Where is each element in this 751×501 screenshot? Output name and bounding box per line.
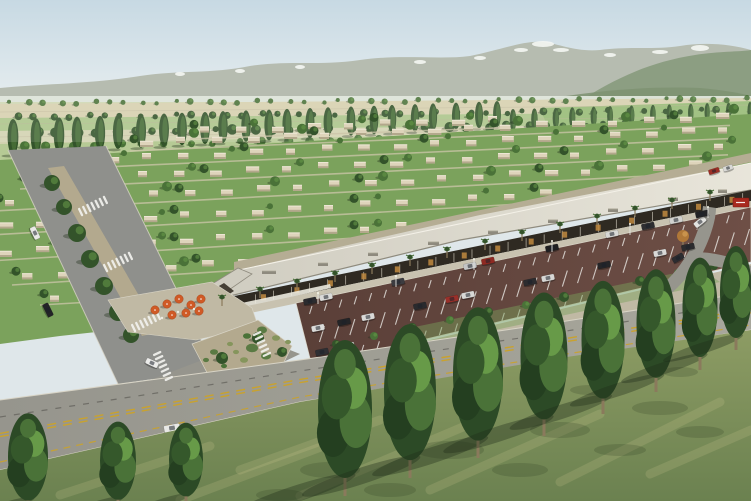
house-face: [320, 137, 329, 139]
tree-highlight: [625, 113, 630, 118]
house-face: [149, 195, 158, 197]
house-parapet: [248, 137, 260, 138]
bush-tree: [483, 188, 489, 194]
shrub: [246, 344, 258, 352]
tree-shadow: [195, 144, 208, 147]
house-parapet: [360, 227, 369, 228]
house-face: [401, 184, 414, 186]
house-face: [142, 157, 151, 159]
house-parapet: [390, 162, 403, 163]
tree-highlight: [299, 159, 303, 163]
palm-crown: [295, 279, 300, 284]
palm-crown: [370, 263, 375, 268]
snow-patch: [414, 60, 426, 64]
house-parapet: [176, 137, 185, 138]
house-face: [236, 131, 246, 133]
house-parapet: [5, 200, 14, 201]
tree-shadow: [107, 149, 121, 152]
house-face: [360, 205, 370, 207]
house-face: [185, 194, 195, 196]
umbrella-tip: [166, 303, 168, 305]
house-face: [248, 141, 260, 143]
house-parapet: [257, 185, 270, 186]
house-parapet: [288, 206, 301, 207]
house-parapet: [380, 119, 390, 120]
house-parapet: [452, 120, 465, 121]
house-parapet: [180, 239, 193, 240]
tree-highlight: [353, 221, 357, 225]
tree-highlight: [525, 302, 529, 306]
house-face: [610, 136, 620, 138]
house-face: [50, 300, 59, 302]
palm-crown: [595, 214, 600, 219]
house-parapet: [236, 127, 246, 128]
house-face: [466, 144, 476, 146]
umbrella-tip: [178, 298, 180, 300]
foliage-blob: [334, 349, 356, 379]
house-face: [200, 131, 209, 133]
house-parapet: [246, 166, 259, 167]
rooftop-unit-top: [548, 219, 558, 220]
storefront-window: [629, 218, 634, 224]
foliage-blob: [111, 427, 125, 444]
house-face: [322, 149, 332, 151]
house-parapet: [653, 165, 665, 166]
house-face: [538, 140, 551, 142]
bush-tree: [445, 133, 451, 139]
house-parapet: [293, 185, 302, 186]
foliage-blob: [693, 264, 707, 286]
umbrella-tip: [185, 312, 187, 314]
house-face: [464, 129, 473, 131]
house-parapet: [540, 189, 552, 190]
house-parapet: [212, 137, 222, 138]
house-face: [653, 169, 665, 171]
palm-crown: [220, 295, 225, 300]
tree-highlight: [281, 348, 286, 353]
house-face: [394, 149, 407, 151]
monument-sign: [733, 198, 749, 207]
house-face: [257, 189, 270, 191]
snow-patch: [175, 72, 185, 76]
house-face: [502, 140, 514, 142]
house-parapet: [166, 265, 176, 266]
house-parapet: [468, 195, 477, 196]
palm-crown: [558, 222, 563, 227]
house-parapet: [200, 126, 209, 127]
house-face: [358, 149, 370, 151]
tree-highlight: [603, 126, 607, 130]
palm-crown: [633, 206, 638, 211]
tree-highlight: [423, 135, 427, 139]
house-face: [210, 175, 222, 177]
storefront-window: [562, 232, 567, 238]
house-face: [570, 157, 579, 159]
pole-lamp: [629, 223, 631, 225]
house-face: [324, 209, 333, 211]
house-parapet: [608, 121, 617, 122]
house-parapet: [570, 153, 579, 154]
house-parapet: [174, 171, 184, 172]
house-parapet: [488, 116, 497, 117]
house-face: [545, 174, 558, 176]
house-parapet: [718, 127, 727, 128]
house-face: [468, 199, 477, 201]
house-face: [426, 162, 435, 164]
shrub: [227, 342, 233, 346]
tree-highlight: [178, 185, 182, 189]
bush-tree: [121, 150, 127, 156]
patio-table: [177, 311, 179, 313]
shade-patch: [632, 401, 688, 415]
house-parapet: [214, 153, 226, 154]
tree-highlight: [706, 153, 711, 158]
house-parapet: [642, 148, 654, 149]
house-parapet: [144, 216, 157, 217]
tree-highlight: [598, 162, 603, 167]
tree-highlight: [76, 226, 84, 234]
house-parapet: [50, 296, 59, 297]
house-parapet: [428, 129, 441, 130]
foliage-blob: [685, 283, 705, 315]
tree-highlight: [373, 114, 377, 118]
house-parapet: [216, 234, 225, 235]
house-face: [642, 152, 654, 154]
foliage-blob: [171, 441, 190, 465]
shade-patch: [492, 463, 548, 477]
rooftop-unit-top: [318, 262, 328, 263]
foliage-blob: [179, 428, 193, 444]
umbrella-tip: [171, 314, 173, 316]
foliage-blob: [730, 252, 743, 272]
house-face: [272, 131, 284, 133]
house-parapet: [680, 117, 692, 118]
bush-tree: [553, 129, 559, 135]
house-parapet: [716, 113, 729, 114]
shade-patch: [676, 426, 724, 438]
pole-lamp: [317, 292, 319, 294]
shrub: [203, 358, 209, 362]
tree-highlight: [274, 177, 279, 182]
house-parapet: [430, 140, 439, 141]
tree-highlight: [469, 113, 473, 117]
house-face: [214, 157, 226, 159]
tree-highlight: [313, 127, 317, 131]
tree-highlight: [383, 156, 387, 160]
snow-patch: [235, 69, 245, 73]
house-face: [416, 124, 428, 126]
house-parapet: [416, 120, 428, 121]
house-parapet: [138, 171, 147, 172]
house-parapet: [545, 170, 558, 171]
house-parapet: [432, 199, 445, 200]
house-parapet: [394, 144, 407, 145]
house-parapet: [365, 180, 377, 181]
tree-highlight: [533, 184, 537, 188]
house-parapet: [286, 149, 295, 150]
shrub: [285, 340, 291, 344]
house-parapet: [221, 190, 233, 191]
rooftop-unit-top: [262, 270, 276, 271]
house-parapet: [329, 180, 339, 181]
house-parapet: [284, 133, 297, 134]
pole-lamp: [395, 275, 397, 277]
palm-crown: [483, 239, 488, 244]
house-face: [574, 140, 583, 142]
house-parapet: [322, 145, 332, 146]
tree-highlight: [487, 308, 492, 313]
house-parapet: [466, 140, 476, 141]
storefront-window: [462, 252, 467, 258]
storefront-window: [696, 204, 701, 210]
house-parapet: [320, 133, 329, 134]
tree-highlight: [515, 146, 519, 150]
tree-highlight: [43, 290, 47, 294]
house-parapet: [210, 171, 222, 172]
tree-highlight: [407, 155, 411, 159]
tree-highlight: [51, 177, 58, 184]
house-parapet: [534, 153, 547, 154]
tree-highlight: [358, 175, 362, 179]
house-face: [282, 170, 291, 172]
house-face: [452, 124, 465, 126]
house-face: [288, 210, 301, 212]
house-face: [0, 227, 13, 229]
storefront-window: [428, 259, 433, 265]
tree-highlight: [195, 255, 199, 259]
house-parapet: [36, 246, 49, 247]
tree-highlight: [193, 129, 198, 134]
house-face: [606, 153, 616, 155]
house-face: [498, 157, 510, 159]
house-face: [437, 179, 446, 181]
house-face: [678, 148, 691, 150]
palm-crown: [670, 198, 675, 203]
house-parapet: [252, 210, 264, 211]
shrub: [240, 357, 248, 363]
snow-patch: [532, 41, 554, 47]
tree-highlight: [45, 143, 49, 147]
house-face: [462, 161, 472, 163]
pole-lamp: [551, 240, 553, 242]
rooftop-unit-top: [718, 189, 727, 190]
tree-highlight: [15, 268, 19, 272]
shrub: [233, 350, 239, 354]
umbrella-tip: [198, 310, 200, 312]
house-face: [581, 174, 590, 176]
house-parapet: [22, 273, 32, 274]
umbrella-tip: [154, 309, 156, 311]
tree-highlight: [490, 167, 495, 172]
tree-shadow: [130, 147, 143, 150]
tree-highlight: [161, 233, 165, 237]
storefront-window: [495, 246, 500, 252]
storefront-window: [395, 266, 400, 272]
foliage-blob: [11, 435, 33, 464]
foliage-blob: [648, 276, 664, 300]
tree-highlight: [173, 233, 177, 237]
house-face: [534, 157, 547, 159]
house-face: [22, 277, 32, 279]
house-parapet: [0, 222, 13, 223]
snow-patch: [604, 53, 616, 57]
house-parapet: [288, 232, 300, 233]
house-face: [216, 215, 226, 217]
house-face: [252, 237, 262, 239]
house-face: [144, 220, 157, 222]
rooftop-unit-top: [428, 241, 439, 242]
house-face: [180, 243, 193, 245]
tree-highlight: [673, 111, 677, 115]
foliage-blob: [535, 301, 554, 329]
rooftop-unit-top: [368, 252, 378, 253]
tree-highlight: [449, 317, 453, 321]
house-face: [212, 141, 222, 143]
pole-lamp: [473, 258, 475, 260]
house-face: [432, 203, 445, 205]
storefront-window: [596, 225, 601, 231]
house-face: [390, 166, 403, 168]
palm-crown: [258, 287, 263, 292]
palm-crown: [708, 190, 713, 195]
house-parapet: [250, 149, 263, 150]
house-face: [682, 132, 695, 134]
house-face: [288, 237, 300, 239]
palm-crown: [408, 255, 413, 260]
house-face: [138, 175, 147, 177]
tree-highlight: [221, 354, 226, 359]
tree-shadow: [172, 145, 185, 148]
house-face: [396, 204, 408, 206]
house-face: [504, 198, 514, 200]
tree-highlight: [243, 143, 247, 147]
house-parapet: [324, 228, 337, 229]
bush-tree: [229, 146, 235, 152]
house-face: [354, 166, 366, 168]
foliage-blob: [639, 296, 661, 331]
shade-patch: [364, 483, 416, 497]
house-parapet: [500, 125, 510, 126]
tree-highlight: [191, 164, 195, 168]
tree-highlight: [733, 105, 738, 110]
house-parapet: [142, 153, 151, 154]
rooftop-unit-top: [608, 208, 618, 209]
tree-highlight: [173, 206, 177, 210]
house-parapet: [396, 200, 408, 201]
house-parapet: [502, 136, 514, 137]
house-parapet: [392, 129, 404, 130]
tree-highlight: [639, 277, 644, 282]
bush-tree: [661, 125, 667, 131]
house-parapet: [358, 144, 370, 145]
shrub: [243, 333, 251, 339]
house-face: [572, 125, 585, 127]
umbrella-tip: [200, 298, 202, 300]
tree-highlight: [409, 121, 414, 126]
house-parapet: [272, 127, 284, 128]
house-face: [250, 153, 263, 155]
tree-highlight: [63, 201, 70, 208]
shrub: [272, 335, 280, 341]
palm-crown: [445, 247, 450, 252]
tree-highlight: [301, 125, 306, 130]
house-face: [509, 175, 521, 177]
house-parapet: [401, 180, 414, 181]
house-parapet: [149, 190, 158, 191]
house-face: [246, 171, 259, 173]
house-parapet: [324, 205, 333, 206]
house-parapet: [437, 175, 446, 176]
house-parapet: [678, 144, 691, 145]
house-face: [286, 153, 295, 155]
tree-highlight: [103, 279, 111, 287]
house-parapet: [308, 123, 321, 124]
house-parapet: [318, 162, 328, 163]
house-parapet: [572, 121, 585, 122]
house-face: [646, 136, 658, 138]
snow-patch: [553, 48, 569, 52]
house-face: [428, 133, 441, 135]
house-parapet: [509, 170, 521, 171]
foliage-blob: [322, 375, 352, 420]
snow-patch: [474, 56, 486, 60]
foliage-blob: [400, 333, 421, 363]
tree-highlight: [353, 195, 357, 199]
tree-highlight: [382, 172, 387, 177]
house-face: [500, 129, 510, 131]
house-parapet: [180, 211, 189, 212]
palm-crown: [333, 271, 338, 276]
house-face: [178, 157, 188, 159]
bush-tree: [267, 203, 273, 209]
house-face: [536, 125, 548, 127]
foliage-blob: [103, 441, 123, 467]
scene-canvas: [0, 0, 751, 501]
house-parapet: [462, 157, 472, 158]
house-parapet: [140, 141, 153, 142]
tree-highlight: [538, 165, 542, 169]
house-face: [356, 133, 366, 135]
tree-highlight: [166, 183, 171, 188]
bush-tree: [337, 138, 343, 144]
shade-patch: [594, 444, 646, 456]
autumn-highlight: [682, 231, 687, 236]
house-parapet: [426, 157, 435, 158]
tree-highlight: [563, 293, 568, 298]
house-parapet: [396, 222, 406, 223]
patio-table: [161, 317, 163, 319]
foliage-blob: [722, 269, 740, 299]
house-parapet: [282, 166, 291, 167]
house-parapet: [504, 194, 514, 195]
tree-highlight: [731, 137, 735, 141]
house-parapet: [610, 132, 620, 133]
house-face: [360, 231, 369, 233]
house-parapet: [581, 170, 590, 171]
pole-lamp: [707, 206, 709, 208]
house-face: [252, 214, 264, 216]
tree-highlight: [623, 141, 627, 145]
tree-highlight: [183, 257, 188, 262]
foliage-blob: [585, 310, 609, 348]
foliage-blob: [468, 316, 488, 345]
tree-shadow: [153, 146, 166, 149]
tree-highlight: [377, 220, 381, 224]
house-parapet: [617, 165, 627, 166]
house-parapet: [178, 153, 188, 154]
umbrella-tip: [190, 304, 192, 306]
house-face: [344, 127, 353, 129]
